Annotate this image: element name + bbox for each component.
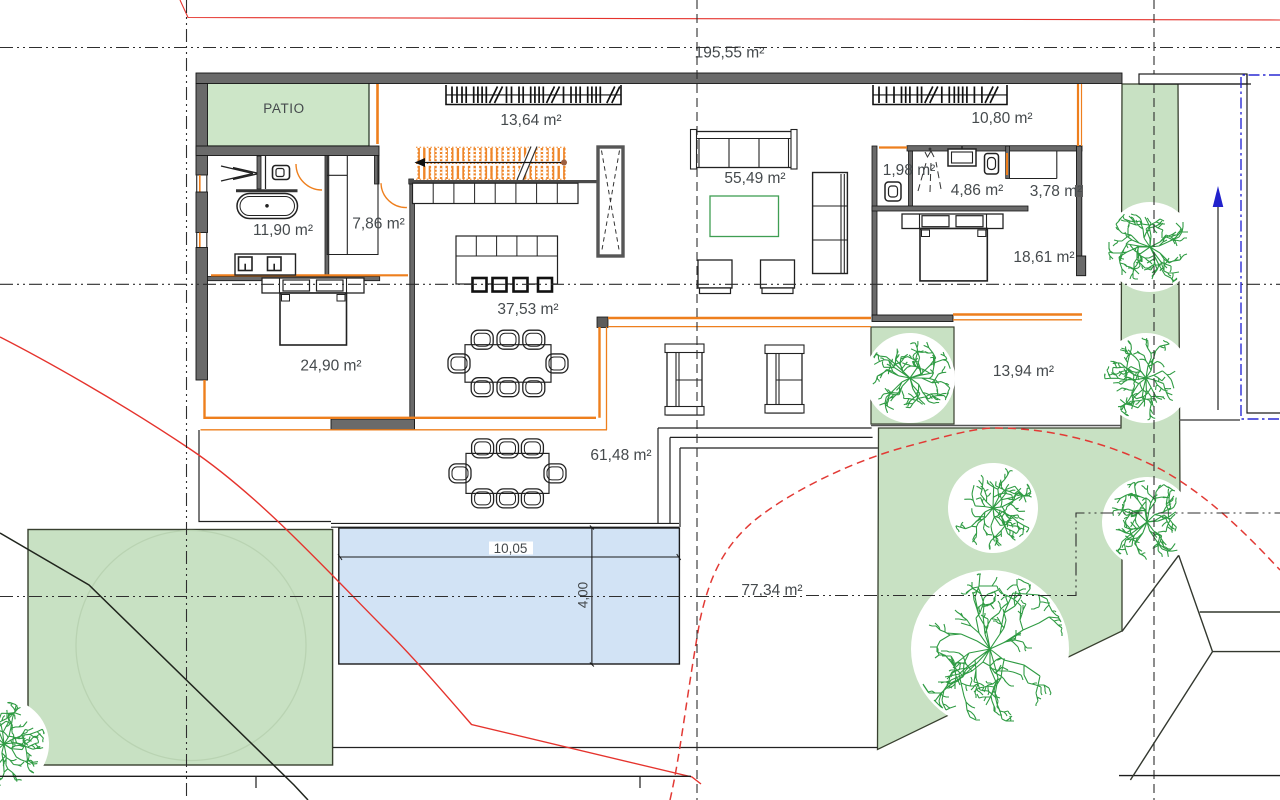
svg-text:61,48 m²: 61,48 m² <box>590 447 651 464</box>
svg-text:4,00: 4,00 <box>576 582 591 608</box>
svg-text:24,90 m²: 24,90 m² <box>300 358 361 375</box>
svg-text:PATIO: PATIO <box>263 101 305 116</box>
svg-text:7,86 m²: 7,86 m² <box>352 216 405 233</box>
svg-text:3,78 m²: 3,78 m² <box>1030 183 1083 200</box>
svg-text:18,61 m²: 18,61 m² <box>1013 249 1074 266</box>
svg-text:13,94 m²: 13,94 m² <box>993 363 1054 380</box>
svg-text:37,53 m²: 37,53 m² <box>497 301 558 318</box>
svg-text:1,98 m²: 1,98 m² <box>883 162 936 179</box>
svg-text:4,86 m²: 4,86 m² <box>951 182 1004 199</box>
svg-text:10,80 m²: 10,80 m² <box>971 110 1032 127</box>
svg-text:10,05: 10,05 <box>494 541 528 556</box>
svg-text:13,64 m²: 13,64 m² <box>500 112 561 129</box>
svg-text:11,90 m²: 11,90 m² <box>253 222 313 239</box>
svg-text:55,49 m²: 55,49 m² <box>724 170 785 187</box>
